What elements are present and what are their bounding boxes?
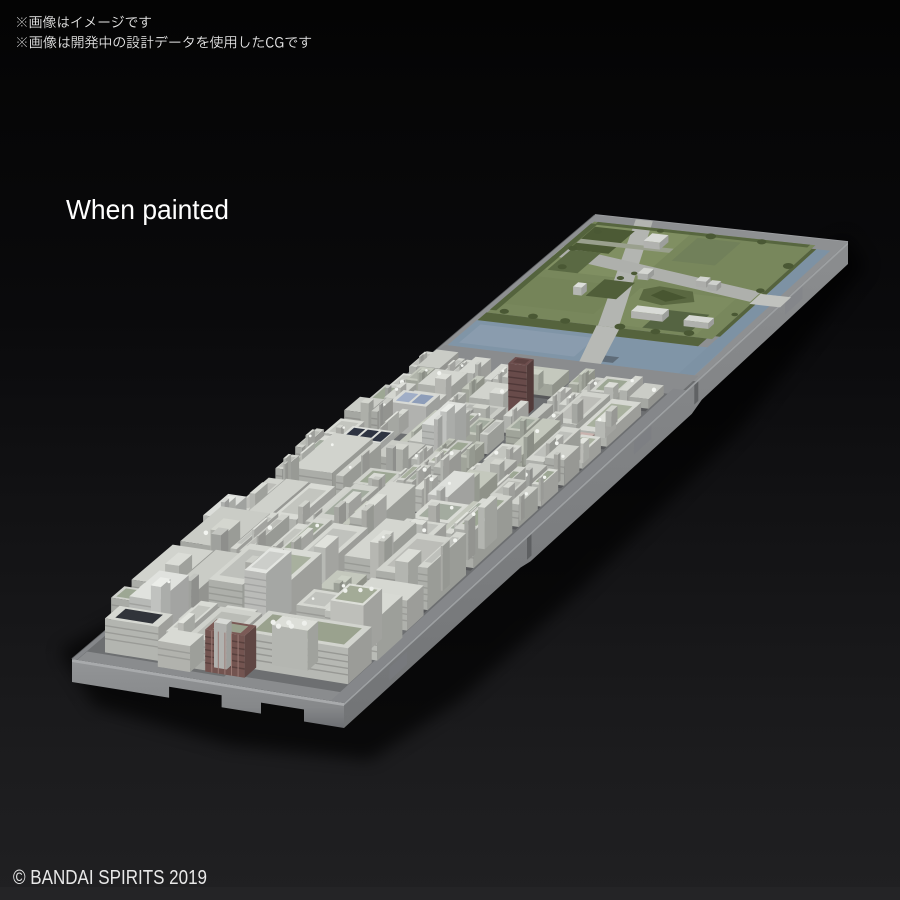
svg-text:When painted: When painted: [66, 194, 229, 225]
svg-text:© BANDAI SPIRITS 2019: © BANDAI SPIRITS 2019: [13, 867, 207, 889]
